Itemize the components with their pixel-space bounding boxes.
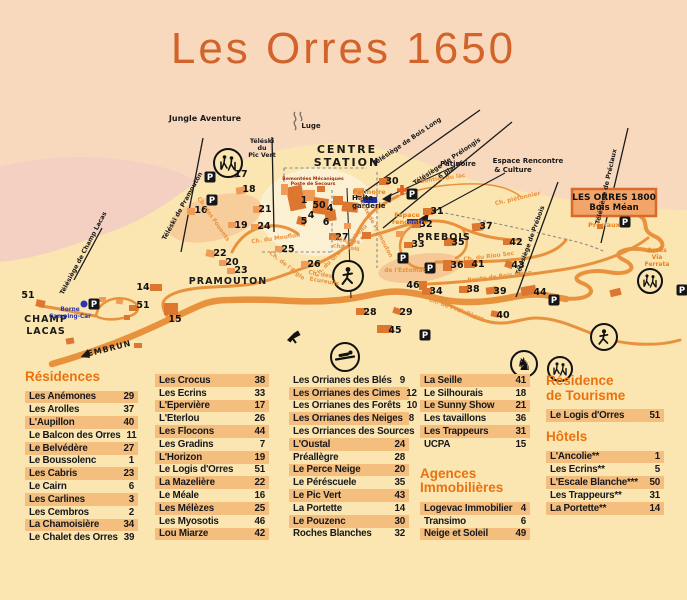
directory-row: Le Logis d'Orres51 [155, 464, 269, 477]
directory-row-name: L'Escale Blanche*** [550, 477, 638, 488]
directory-row-number: 1 [129, 455, 134, 466]
directory-row-name: L'Ancolie** [550, 451, 599, 462]
directory-heading: Résidencede Tourisme [546, 374, 664, 403]
directory-row-name: Roches Blanches [293, 528, 372, 539]
directory-row: L'Escale Blanche***50 [546, 476, 664, 489]
directory-row: Roches Blanches32 [289, 528, 409, 541]
directory-row: Le Boussolenc1 [25, 455, 138, 468]
directory-row-number: 10 [407, 400, 418, 411]
directory-row: Le Logis d'Orres51 [546, 409, 664, 422]
directory-row-number: 5 [655, 464, 660, 475]
directory-heading: Résidences [25, 370, 138, 385]
directory-row-number: 41 [516, 375, 527, 386]
directory-heading-line: Immobilières [420, 481, 530, 496]
directory-row-name: Les Orriances des Sources [293, 426, 414, 437]
directory-row-number: 42 [255, 528, 266, 539]
directory-row: Les Crocus38 [155, 374, 269, 387]
directory-row-name: Le Balcon des Orres [29, 430, 121, 441]
directory-row: UCPA15 [420, 438, 530, 451]
directory-heading-line: Résidences [25, 370, 138, 385]
directory-row-number: 46 [255, 516, 266, 527]
directory-row-number: 25 [255, 503, 266, 514]
directory-row-name: L'Epervière [159, 400, 210, 411]
directory-heading-line: Résidence [546, 374, 664, 389]
directory-row-name: La Portette** [550, 503, 606, 514]
directory-row: Les Carlines3 [25, 493, 138, 506]
directory-row-number: 40 [124, 417, 135, 428]
directory-row-number: 39 [124, 532, 135, 543]
directory-row: Le Chalet des Orres39 [25, 531, 138, 544]
directory-row-name: La Mazelière [159, 477, 215, 488]
directory-row: L'Eterlou26 [155, 412, 269, 425]
directory-row-number: 38 [255, 375, 266, 386]
directory-heading-line: Agences [420, 467, 530, 482]
directory-heading-line: de Tourisme [546, 389, 664, 404]
directory-row-number: 27 [124, 443, 135, 454]
directory-row: L'Aupillon40 [25, 416, 138, 429]
directory-row-name: Le Cairn [29, 481, 67, 492]
directory-row: L'Ancolie**1 [546, 451, 664, 464]
directory-row: La Portette**14 [546, 502, 664, 515]
directory-row: Le Méale16 [155, 489, 269, 502]
directory-row-number: 18 [516, 388, 527, 399]
directory-row: Les Flocons44 [155, 425, 269, 438]
directory-row-name: L'Eterlou [159, 413, 199, 424]
directory-row-name: Le Perce Neige [293, 464, 360, 475]
directory-row-name: Les Cabris [29, 468, 77, 479]
directory-row: Le Silhourais18 [420, 387, 530, 400]
directory-row: Lou Miarze42 [155, 528, 269, 541]
directory-row: L'Oustal24 [289, 438, 409, 451]
directory-row-number: 36 [516, 413, 527, 424]
directory-row: Les Cabris23 [25, 467, 138, 480]
directory-row-number: 15 [516, 439, 527, 450]
directory-row-name: La Portette [293, 503, 342, 514]
directory-row-number: 11 [127, 430, 137, 441]
directory-row-name: Les Orrianes des Neiges [293, 413, 403, 424]
directory-row: Les Trappeurs**31 [546, 489, 664, 502]
directory-row-name: L'Aupillon [29, 417, 75, 428]
directory-row-number: 6 [521, 516, 526, 527]
directory-row-name: Les Crocus [159, 375, 210, 386]
directory-row: Les Arolles37 [25, 403, 138, 416]
directory-row-name: Le Pic Vert [293, 490, 341, 501]
directory-row-name: Les Cembros [29, 507, 89, 518]
directory-row-name: Le Péréscuele [293, 477, 356, 488]
directory-row-number: 29 [124, 391, 135, 402]
directory-row-name: Les Gradins [159, 439, 213, 450]
directory-row: Les Trappeurs31 [420, 425, 530, 438]
directory-row: Les Orrianes des Cimes12 [289, 387, 409, 400]
directory-row: Les Orrianes des Neiges8 [289, 412, 409, 425]
directory-row-number: 28 [395, 452, 406, 463]
directory-row-name: Les Myosotis [159, 516, 219, 527]
directory-row-name: Les Orrianes des Cimes [293, 388, 400, 399]
directory-row: Les Cembros2 [25, 506, 138, 519]
directory-row-name: L'Horizon [159, 452, 202, 463]
directory-row: Préallègre28 [289, 451, 409, 464]
directory-row-name: Les Ecrins** [550, 464, 605, 475]
directory-row-name: Les Trappeurs [424, 426, 488, 437]
directory-column-3: Les Orrianes des Blés9Les Orrianes des C… [289, 374, 409, 540]
directory-row-number: 24 [395, 439, 406, 450]
directory-row-number: 32 [395, 528, 406, 539]
directory-row: Le Pic Vert43 [289, 489, 409, 502]
directory-row-number: 35 [395, 477, 406, 488]
directory-row-name: La Chamoisière [29, 519, 99, 530]
directory-column-5: Résidencede TourismeLe Logis d'Orres51Hô… [546, 374, 664, 515]
directory-row-number: 14 [395, 503, 406, 514]
directory-row: Les Orrianes des Forêts10 [289, 400, 409, 413]
directory-row: Les Orriances des Sources13 [289, 425, 409, 438]
directory-row-name: Le Belvédère [29, 443, 88, 454]
directory-row: La Chamoisière34 [25, 519, 138, 532]
directory-row: Les Myosotis46 [155, 515, 269, 528]
directory-row-name: La Seille [424, 375, 462, 386]
page: LES ORRES 1800 Bois Méan ♞PPPPPPPPPP 144… [0, 0, 687, 600]
directory-row: Le Perce Neige20 [289, 464, 409, 477]
directory-row-name: Les Orrianes des Blés [293, 375, 392, 386]
directory-row-name: Les Trappeurs** [550, 490, 622, 501]
directory-row-number: 6 [129, 481, 134, 492]
directory-row: La Mazelière22 [155, 476, 269, 489]
directory-row-number: 37 [124, 404, 135, 415]
directory-row: La Portette14 [289, 502, 409, 515]
directory-row-name: Neige et Soleil [424, 528, 488, 539]
directory-row-number: 21 [516, 400, 527, 411]
directory-row-number: 31 [516, 426, 527, 437]
directory-row-number: 8 [409, 413, 414, 424]
directory-row-number: 12 [406, 388, 417, 399]
directory-row-name: L'Oustal [293, 439, 330, 450]
directory-row-name: Les Carlines [29, 494, 85, 505]
directory-row: Le Sunny Show21 [420, 400, 530, 413]
directory-row-number: 34 [124, 519, 135, 530]
directory-row: Les tavaillons36 [420, 412, 530, 425]
directory-row-number: 7 [260, 439, 265, 450]
directory-row: Le Pouzenc30 [289, 515, 409, 528]
directory-row: Les Ecrins**5 [546, 463, 664, 476]
directory-row-number: 51 [650, 410, 661, 421]
directory-heading: AgencesImmobilières [420, 467, 530, 496]
directory-row-name: Le Logis d'Orres [550, 410, 624, 421]
directory-row-number: 20 [395, 464, 406, 475]
directory-row-name: Les Anémones [29, 391, 96, 402]
directory-row-number: 22 [255, 477, 266, 488]
directory-row-name: Lou Miarze [159, 528, 208, 539]
directory-row-name: Préallègre [293, 452, 338, 463]
directory-row-number: 30 [395, 516, 406, 527]
directory-row: La Seille41 [420, 374, 530, 387]
directory-row: Les Anémones29 [25, 391, 138, 404]
directory-row: Les Ecrins33 [155, 387, 269, 400]
directory-column-2: Les Crocus38Les Ecrins33L'Epervière17L'E… [155, 374, 269, 540]
directory: RésidencesLes Anémones29Les Arolles37L'A… [0, 0, 687, 600]
directory-row-number: 23 [124, 468, 135, 479]
directory-row-name: Le Chalet des Orres [29, 532, 118, 543]
directory-row-name: Le Pouzenc [293, 516, 345, 527]
directory-row-number: 51 [255, 464, 266, 475]
directory-heading: Hôtels [546, 430, 664, 445]
directory-row-name: Les Orrianes des Forêts [293, 400, 401, 411]
directory-row-number: 49 [516, 528, 527, 539]
directory-row: Le Cairn6 [25, 480, 138, 493]
directory-row-number: 43 [395, 490, 406, 501]
directory-row-number: 19 [255, 452, 266, 463]
directory-row-number: 3 [129, 494, 134, 505]
directory-row: Les Orrianes des Blés9 [289, 374, 409, 387]
directory-row-name: Transimo [424, 516, 466, 527]
directory-row-name: Les tavaillons [424, 413, 486, 424]
directory-row-name: Le Silhourais [424, 388, 483, 399]
directory-row: Les Mélèzes25 [155, 502, 269, 515]
directory-row-number: 16 [255, 490, 266, 501]
directory-row-number: 26 [255, 413, 266, 424]
directory-column-4: La Seille41Le Silhourais18Le Sunny Show2… [420, 374, 530, 540]
directory-row-number: 17 [255, 400, 266, 411]
directory-row-number: 50 [650, 477, 661, 488]
directory-row-number: 33 [255, 388, 266, 399]
directory-row: Les Gradins7 [155, 438, 269, 451]
directory-row-number: 31 [650, 490, 661, 501]
directory-column-1: RésidencesLes Anémones29Les Arolles37L'A… [25, 370, 138, 544]
directory-heading-line: Hôtels [546, 430, 664, 445]
directory-row: Logevac Immobilier4 [420, 502, 530, 515]
directory-row-name: Le Logis d'Orres [159, 464, 233, 475]
directory-row-number: 9 [400, 375, 405, 386]
directory-row-name: Les Mélèzes [159, 503, 214, 514]
directory-row: Neige et Soleil49 [420, 528, 530, 541]
directory-row: Le Belvédère27 [25, 442, 138, 455]
directory-row: Le Péréscuele35 [289, 476, 409, 489]
directory-row-number: 2 [129, 507, 134, 518]
directory-row: Transimo6 [420, 515, 530, 528]
directory-row-number: 1 [655, 451, 660, 462]
directory-row-number: 4 [521, 503, 526, 514]
directory-row-name: Logevac Immobilier [424, 503, 512, 514]
directory-row: Le Balcon des Orres11 [25, 429, 138, 442]
directory-row-number: 14 [650, 503, 661, 514]
directory-row-name: Le Méale [159, 490, 199, 501]
directory-row-name: UCPA [424, 439, 450, 450]
directory-row-name: Le Sunny Show [424, 400, 494, 411]
directory-row-number: 44 [255, 426, 266, 437]
directory-row: L'Horizon19 [155, 451, 269, 464]
directory-row: L'Epervière17 [155, 400, 269, 413]
directory-row-name: Les Ecrins [159, 388, 207, 399]
directory-row-name: Les Arolles [29, 404, 79, 415]
directory-row-name: Les Flocons [159, 426, 214, 437]
directory-row-name: Le Boussolenc [29, 455, 96, 466]
